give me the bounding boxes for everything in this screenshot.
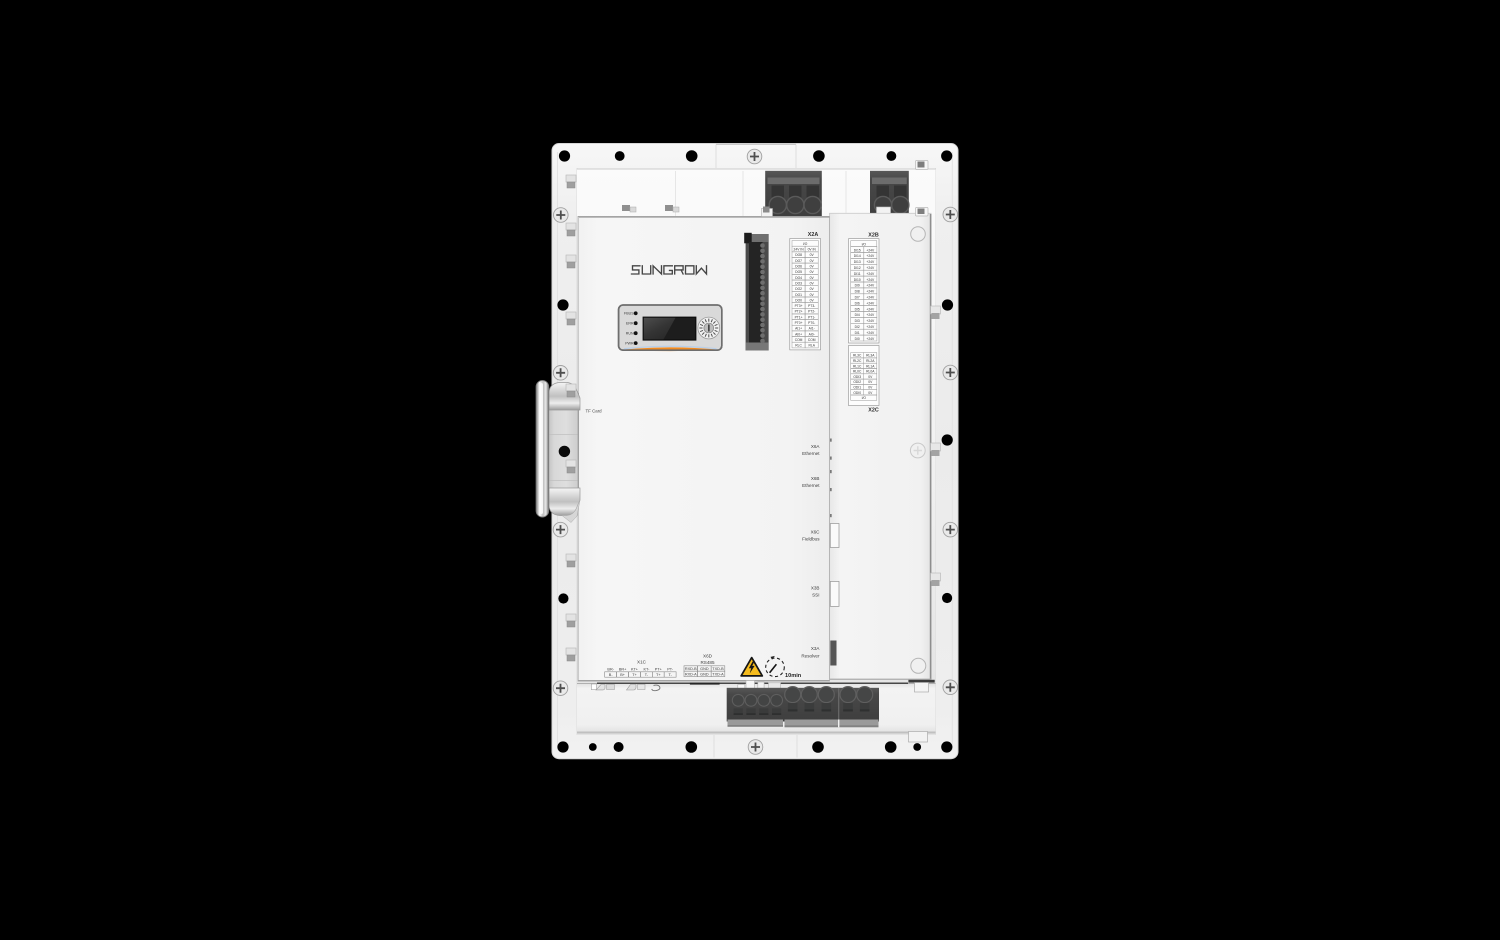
svg-text:ERR: ERR	[626, 322, 634, 326]
svg-text:ODI0: ODI0	[853, 391, 861, 395]
svg-text:X2C: X2C	[868, 408, 879, 414]
svg-text:DI9: DI9	[855, 284, 860, 288]
svg-text:DO0: DO0	[795, 298, 802, 302]
svg-text:RL2C: RL2C	[853, 359, 862, 363]
svg-text:X6B: X6B	[811, 476, 820, 481]
svg-text:PT0+: PT0+	[795, 321, 803, 325]
svg-text:+24V: +24V	[866, 260, 875, 264]
svg-text:GND: GND	[700, 667, 709, 671]
svg-text:AI1-: AI1-	[809, 327, 815, 331]
svg-text:Fieldbus: Fieldbus	[802, 537, 820, 542]
svg-text:T+: T+	[632, 673, 637, 677]
svg-text:0V IN: 0V IN	[808, 248, 817, 252]
svg-text:X2B: X2B	[868, 233, 879, 239]
svg-text:DI11: DI11	[854, 272, 861, 276]
svg-text:B+: B+	[620, 673, 626, 677]
svg-text:+24V: +24V	[866, 307, 875, 311]
svg-text:RXD-A: RXD-A	[685, 673, 697, 677]
svg-text:PT3-: PT3-	[808, 304, 815, 308]
svg-text:+24V: +24V	[866, 337, 875, 341]
svg-text:+24V: +24V	[866, 331, 875, 335]
svg-text:DI6: DI6	[855, 301, 860, 305]
svg-text:DO1: DO1	[795, 293, 802, 297]
svg-text:+24V: +24V	[866, 284, 875, 288]
svg-text:AI0-: AI0-	[809, 332, 815, 336]
svg-text:DI10: DI10	[854, 278, 861, 282]
svg-text:BR+: BR+	[619, 667, 627, 671]
svg-text:RL2A: RL2A	[866, 359, 875, 363]
svg-text:+24V: +24V	[866, 272, 875, 276]
svg-text:I/O: I/O	[803, 242, 808, 246]
svg-text:DO2: DO2	[795, 287, 802, 291]
svg-text:GND: GND	[700, 673, 709, 677]
svg-text:SSI: SSI	[812, 593, 819, 598]
svg-text:TF Card: TF Card	[586, 408, 603, 413]
svg-text:PT+: PT+	[655, 667, 663, 671]
svg-text:DO7: DO7	[795, 259, 802, 263]
svg-text:Resolver: Resolver	[801, 654, 820, 659]
svg-text:24V IN: 24V IN	[794, 248, 805, 252]
svg-text:X3B: X3B	[811, 586, 820, 591]
svg-text:+24V: +24V	[866, 313, 875, 317]
svg-text:I/O: I/O	[862, 396, 867, 400]
svg-text:DI12: DI12	[854, 266, 861, 270]
svg-text:DO6: DO6	[795, 265, 802, 269]
svg-text:RLC: RLC	[795, 344, 802, 348]
svg-text:DO3: DO3	[795, 282, 802, 286]
svg-text:TXD-B: TXD-B	[712, 667, 724, 671]
svg-text:FBUS: FBUS	[624, 312, 634, 316]
svg-text:RUN: RUN	[626, 332, 634, 336]
svg-text:RL3A: RL3A	[866, 354, 875, 358]
svg-text:KT-: KT-	[643, 667, 650, 671]
svg-text:RS485: RS485	[700, 660, 714, 665]
svg-text:DO4: DO4	[795, 276, 802, 280]
svg-text:DI0: DI0	[855, 337, 860, 341]
svg-text:X6D: X6D	[703, 654, 713, 659]
svg-text:DI5: DI5	[855, 307, 860, 311]
svg-text:ODI2: ODI2	[853, 380, 861, 384]
svg-text:ODI1: ODI1	[853, 386, 861, 390]
svg-text:Ethernet: Ethernet	[802, 483, 820, 488]
svg-text:PT1+: PT1+	[795, 315, 803, 319]
svg-text:KT+: KT+	[631, 667, 639, 671]
svg-text:X3A: X3A	[811, 646, 821, 651]
svg-text:DI8: DI8	[855, 290, 860, 294]
svg-text:ODI3: ODI3	[853, 375, 861, 379]
svg-text:+24V: +24V	[866, 290, 875, 294]
svg-text:RXD-B: RXD-B	[685, 667, 697, 671]
svg-text:DI4: DI4	[855, 313, 860, 317]
svg-text:PT2+: PT2+	[795, 310, 803, 314]
svg-text:PT3+: PT3+	[795, 304, 803, 308]
svg-text:RL0A: RL0A	[866, 370, 875, 374]
svg-text:+24V: +24V	[866, 325, 875, 329]
svg-text:DI13: DI13	[854, 260, 861, 264]
svg-text:DO5: DO5	[795, 270, 802, 274]
svg-text:RLA: RLA	[808, 344, 815, 348]
svg-text:RL0C: RL0C	[853, 370, 862, 374]
svg-text:PWR: PWR	[625, 341, 634, 345]
svg-text:DI2: DI2	[855, 325, 860, 329]
svg-text:10min: 10min	[785, 673, 802, 679]
svg-text:AI0+: AI0+	[795, 332, 802, 336]
svg-text:RL3C: RL3C	[853, 354, 862, 358]
svg-text:COM: COM	[808, 338, 816, 342]
svg-text:DI7: DI7	[855, 296, 860, 300]
svg-text:X6A: X6A	[811, 444, 821, 449]
svg-text:+24V: +24V	[866, 266, 875, 270]
svg-text:Ethernet: Ethernet	[802, 451, 820, 456]
svg-text:RL1A: RL1A	[866, 364, 875, 368]
svg-text:PT1-: PT1-	[808, 315, 815, 319]
svg-text:PT0-: PT0-	[808, 321, 815, 325]
svg-text:+24V: +24V	[866, 319, 875, 323]
svg-text:DI3: DI3	[855, 319, 860, 323]
svg-text:RL1C: RL1C	[853, 364, 862, 368]
svg-text:X6C: X6C	[811, 530, 821, 535]
svg-text:X1C: X1C	[637, 660, 647, 665]
svg-text:DI15: DI15	[854, 248, 861, 252]
svg-text:X2A: X2A	[808, 232, 819, 238]
svg-text:+24V: +24V	[866, 278, 875, 282]
svg-text:PT2-: PT2-	[808, 310, 815, 314]
svg-text:DI14: DI14	[854, 254, 861, 258]
svg-text:I/O: I/O	[862, 242, 867, 246]
svg-text:+24V: +24V	[866, 254, 875, 258]
svg-text:AI1+: AI1+	[795, 327, 802, 331]
svg-text:+24V: +24V	[866, 296, 875, 300]
svg-text:DO8: DO8	[795, 253, 802, 257]
svg-text:PT-: PT-	[667, 667, 674, 671]
svg-text:+24V: +24V	[866, 301, 875, 305]
svg-text:BR-: BR-	[607, 667, 614, 671]
svg-text:DI1: DI1	[855, 331, 860, 335]
svg-text:T+: T+	[656, 673, 661, 677]
svg-text:COM: COM	[795, 338, 803, 342]
svg-text:+24V: +24V	[866, 248, 875, 252]
svg-text:TXD-A: TXD-A	[712, 673, 724, 677]
